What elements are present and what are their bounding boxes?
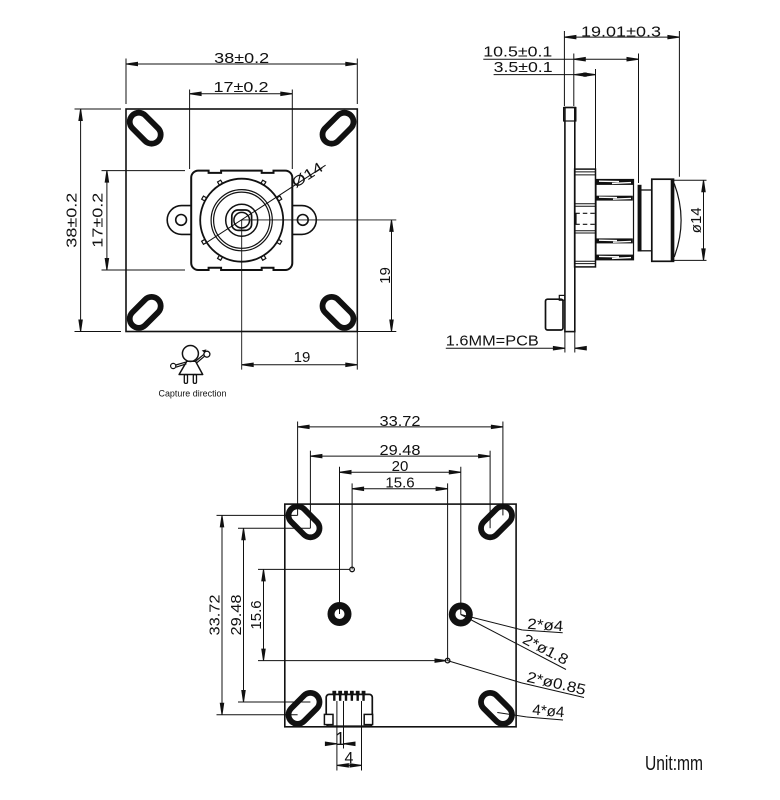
svg-text:3.5±0.1: 3.5±0.1	[494, 59, 553, 76]
svg-text:1.6MM=PCB: 1.6MM=PCB	[446, 333, 539, 350]
svg-text:4: 4	[345, 750, 354, 767]
svg-text:4*ø4: 4*ø4	[532, 702, 565, 722]
svg-text:2*ø0.85: 2*ø0.85	[525, 669, 587, 699]
svg-text:15.6: 15.6	[248, 600, 265, 629]
svg-text:17±0.2: 17±0.2	[90, 193, 107, 248]
svg-text:Unit:mm: Unit:mm	[645, 752, 703, 775]
svg-text:ø14: ø14	[688, 207, 705, 233]
svg-text:20: 20	[392, 458, 409, 475]
svg-text:19.01±0.3: 19.01±0.3	[581, 23, 661, 40]
svg-text:19: 19	[377, 267, 394, 284]
svg-text:33.72: 33.72	[380, 413, 421, 430]
svg-text:10.5±0.1: 10.5±0.1	[483, 44, 552, 61]
svg-text:29.48: 29.48	[380, 442, 421, 459]
svg-text:29.48: 29.48	[228, 595, 245, 636]
svg-text:38±0.2: 38±0.2	[63, 193, 80, 248]
svg-text:38±0.2: 38±0.2	[214, 50, 269, 67]
svg-text:Capture direction: Capture direction	[159, 389, 227, 399]
svg-text:15.6: 15.6	[385, 475, 414, 492]
svg-text:1: 1	[335, 729, 345, 749]
svg-text:19: 19	[294, 349, 311, 366]
svg-text:Ø14: Ø14	[289, 160, 326, 192]
svg-text:17±0.2: 17±0.2	[214, 79, 269, 96]
svg-text:33.72: 33.72	[207, 595, 224, 636]
svg-text:2*ø1.8: 2*ø1.8	[520, 631, 571, 669]
